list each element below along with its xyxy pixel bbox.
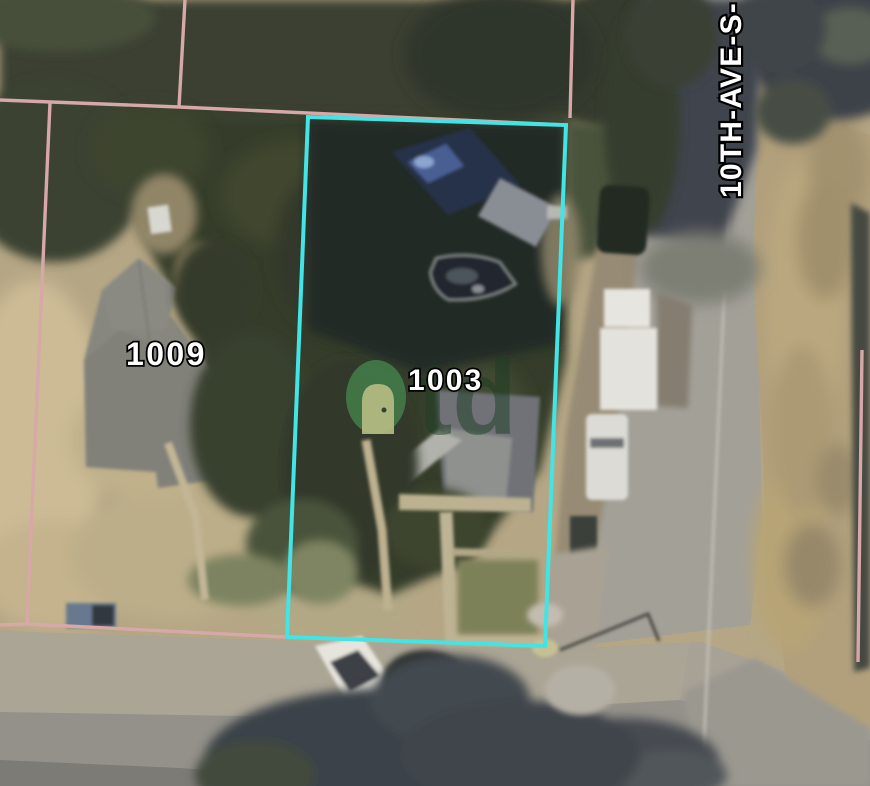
svg-text:1009: 1009 [126, 336, 207, 372]
svg-text:10TH-AVE-S-: 10TH-AVE-S- [715, 2, 748, 198]
svg-text:td: td [417, 339, 517, 457]
svg-text:1003: 1003 [408, 364, 484, 397]
